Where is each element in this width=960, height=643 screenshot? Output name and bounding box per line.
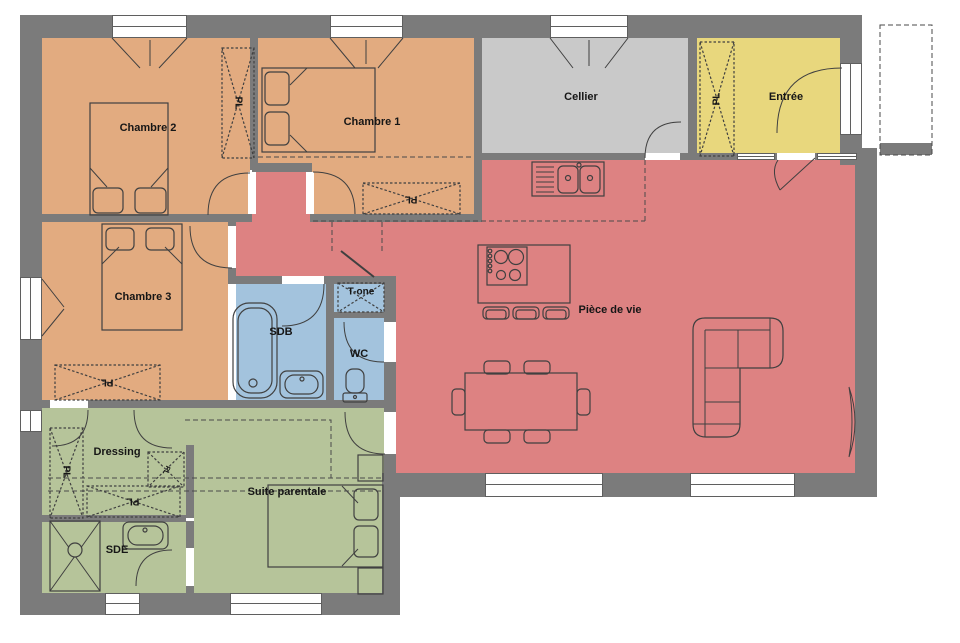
door-opening — [186, 548, 194, 586]
interior-window — [817, 153, 857, 160]
door-opening — [384, 322, 396, 362]
door-opening — [645, 153, 680, 160]
room-label-cellier: Cellier — [564, 91, 598, 103]
floor-plan: Chambre 2 Chambre 1 Cellier Entrée Pièce… — [0, 0, 960, 643]
corridor-area — [396, 284, 482, 473]
closet-label: PL — [61, 466, 72, 479]
closet-label: PL — [127, 496, 140, 507]
room-label-chambre1: Chambre 1 — [344, 116, 401, 128]
room-sde-area — [42, 522, 186, 593]
wall — [688, 15, 697, 160]
room-label-sdb: SDB — [269, 326, 292, 338]
wall — [310, 214, 482, 222]
hallway-area — [236, 222, 482, 284]
room-suite-door-sliver — [186, 408, 194, 445]
wall — [482, 153, 645, 160]
window — [550, 15, 628, 38]
window — [230, 593, 322, 615]
wall — [855, 155, 877, 497]
window — [485, 473, 603, 497]
room-label-sde: SDE — [106, 544, 129, 556]
room-label-suite: Suite parentale — [248, 486, 327, 498]
window — [20, 410, 42, 432]
front-door — [840, 63, 862, 135]
room-dressing-area — [42, 408, 186, 515]
door-opening — [777, 153, 815, 160]
closet-label: PL — [712, 93, 723, 106]
room-label-wc: WC — [350, 348, 368, 360]
door-opening — [306, 172, 314, 214]
wall — [186, 445, 194, 518]
wall — [382, 473, 877, 497]
wall — [20, 214, 252, 222]
wall — [334, 312, 390, 318]
room-label-chambre3: Chambre 3 — [115, 291, 172, 303]
wall — [680, 153, 697, 160]
wall — [474, 15, 482, 222]
wall — [384, 454, 396, 497]
door-opening — [228, 226, 236, 268]
window — [105, 593, 140, 615]
wall — [252, 163, 312, 172]
room-piece-de-vie-area — [482, 160, 855, 473]
door-opening — [384, 412, 396, 454]
window — [112, 15, 187, 38]
wall — [20, 593, 400, 615]
window — [330, 15, 403, 38]
room-label-tone: T-one — [348, 287, 375, 298]
window — [20, 277, 42, 340]
room-label-dressing: Dressing — [93, 446, 140, 458]
closet-label: PL — [233, 97, 244, 110]
room-wc-area — [334, 318, 384, 402]
door-opening — [248, 172, 256, 214]
room-label-entree: Entrée — [769, 91, 803, 103]
wall — [326, 284, 334, 402]
window — [690, 473, 795, 497]
room-chambre3-area — [42, 222, 228, 400]
wall — [42, 515, 186, 522]
room-suite-area — [194, 408, 384, 593]
hall-alcove-area — [252, 170, 312, 222]
room-label-chambre2: Chambre 2 — [120, 122, 177, 134]
room-label-piece-de-vie: Pièce de vie — [579, 304, 642, 316]
door-opening — [50, 400, 88, 408]
porch-outline — [880, 25, 932, 155]
porch-slab — [880, 143, 932, 155]
door-opening — [282, 276, 324, 284]
closet-label: PL — [405, 194, 418, 205]
wall — [382, 497, 400, 607]
wall — [250, 15, 258, 170]
room-sdb-area — [236, 284, 326, 402]
closet-label: PL — [101, 377, 114, 388]
interior-window — [737, 153, 775, 160]
